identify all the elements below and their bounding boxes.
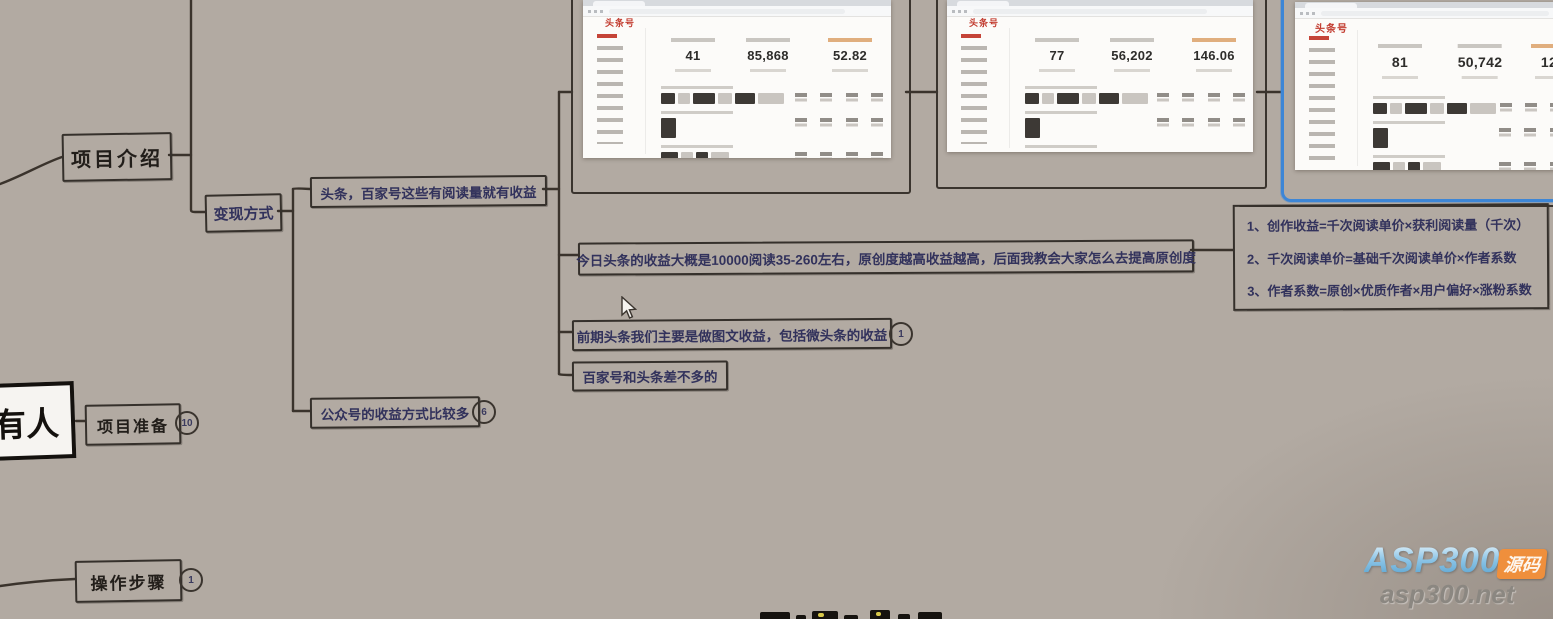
row-metrics [1499, 162, 1553, 170]
row-title-bar [1373, 96, 1445, 99]
row-metrics [1500, 103, 1553, 112]
content-list [661, 86, 883, 158]
url-field [609, 9, 845, 14]
row-title-bar [1025, 145, 1097, 148]
stat-label [1110, 38, 1154, 42]
node-income-detail[interactable]: 今日头条的收益大概是10000阅读35-260左右，原创度越高收益越高，后面我教… [578, 239, 1194, 275]
sidebar-item-active [1309, 36, 1329, 40]
metric-cell [1182, 118, 1194, 127]
metric-cell [1157, 93, 1169, 102]
formula-line-3: 3、作者系数=原创×优质作者×用户偏好×涨粉系数 [1247, 279, 1535, 300]
nav-buttons [588, 10, 604, 13]
stat-reads: 85,868 [746, 38, 790, 72]
stat-reads: 56,202 [1110, 38, 1154, 72]
row-thumbnails [661, 118, 676, 138]
content-row [1025, 145, 1245, 152]
stat-sublabel [1535, 76, 1553, 79]
formula-line-1: 1、创作收益=千次阅读单价×获利阅读量（千次） [1247, 214, 1535, 235]
row-metrics [1157, 118, 1245, 127]
row-thumbnails [1373, 128, 1388, 148]
node-steps[interactable]: 操作步骤 [75, 559, 183, 603]
sidebar-item-active [961, 34, 981, 38]
metric-cell [795, 152, 807, 158]
row-metrics [1499, 128, 1553, 137]
metric-cell [1550, 162, 1553, 170]
metric-cell [1499, 162, 1511, 170]
stat-value: 41 [671, 48, 715, 63]
node-project-intro[interactable]: 项目介绍 [62, 132, 173, 182]
row-line [1025, 118, 1245, 138]
row-thumbnails [1373, 103, 1496, 114]
url-field [1321, 11, 1549, 16]
thumbnail [1408, 162, 1420, 170]
thumbnail [1025, 93, 1039, 104]
stat-value: 146.06 [1192, 48, 1236, 63]
content-row [1373, 121, 1553, 148]
asp300-url: asp300.net [1380, 579, 1514, 610]
row-title-bar [661, 111, 733, 114]
sidebar-items [961, 46, 987, 144]
metric-cell [1524, 128, 1536, 137]
row-line [1373, 128, 1553, 148]
toutiaohao-logo: 头条号 [605, 16, 635, 29]
stat-label [746, 38, 790, 42]
thumbnail [678, 93, 690, 104]
stat-value: 50,742 [1458, 54, 1503, 70]
thumbnail [1447, 103, 1467, 114]
metric-cell [1550, 128, 1553, 137]
row-thumbnails [1025, 93, 1148, 104]
nav-buttons [952, 10, 968, 13]
node-formula-notes[interactable]: 1、创作收益=千次阅读单价×获利阅读量（千次） 2、千次阅读单价=基础千次阅读单… [1233, 203, 1550, 311]
node-baijia-similar[interactable]: 百家号和头条差不多的 [572, 360, 728, 391]
stat-label [1192, 38, 1236, 42]
row-metrics [1157, 93, 1245, 102]
stat-fans: 41 [671, 38, 715, 72]
badge-steps[interactable]: 1 [179, 568, 203, 592]
thumbnail [661, 152, 678, 158]
badge-early-stage[interactable]: 1 [889, 322, 913, 346]
content-row [661, 86, 883, 104]
content-row [661, 111, 883, 138]
sidebar-menu [597, 34, 627, 144]
stat-fans: 77 [1035, 38, 1079, 72]
sidebar-item-active [597, 34, 617, 38]
metric-cell [1233, 118, 1245, 127]
metric-cell [1208, 118, 1220, 127]
metric-cell [1525, 103, 1537, 112]
metric-cell [820, 152, 832, 158]
row-line [1373, 103, 1553, 114]
metric-cell [1233, 93, 1245, 102]
row-thumbnails [661, 152, 729, 158]
stat-label [671, 38, 715, 42]
nav-buttons [1300, 12, 1316, 15]
thumbnail [661, 118, 676, 138]
metric-cell [846, 93, 858, 102]
thumbnail [681, 152, 693, 158]
stat-value: 77 [1035, 48, 1079, 63]
thumbnail [1373, 103, 1387, 114]
browser-addressbar [1295, 8, 1553, 19]
stat-label [1035, 38, 1079, 42]
metric-cell [871, 118, 883, 127]
yuanma-badge: 源码 [1496, 549, 1547, 579]
browser-screenshot-3: 头条号 81 50,742 120 [1295, 2, 1553, 170]
thumbnail [1390, 103, 1402, 114]
stat-income: 52.82 [828, 38, 872, 72]
asp300-logo: ASP300 [1364, 541, 1500, 581]
metric-cell [1157, 118, 1169, 127]
row-line [1025, 93, 1245, 104]
toutiaohao-logo: 头条号 [1315, 20, 1348, 35]
metric-cell [846, 152, 858, 158]
metric-cell [1208, 93, 1220, 102]
row-metrics [795, 118, 883, 127]
clipped-caption-text [752, 606, 952, 619]
badge-gongzhonghao[interactable]: 6 [472, 400, 496, 424]
thumbnail [711, 152, 729, 158]
mindmap-canvas[interactable]: 头条号 41 85,868 52.82 头条号 77 56,202 146.06… [0, 0, 1553, 619]
root-node-partial[interactable]: 有人 [0, 381, 76, 462]
metric-cell [871, 152, 883, 158]
toutiaohao-logo: 头条号 [969, 16, 999, 29]
metric-cell [820, 93, 832, 102]
stat-value: 120 [1531, 54, 1553, 70]
stat-sublabel [675, 69, 711, 72]
sidebar-divider [1009, 28, 1010, 148]
row-title-bar [661, 86, 733, 89]
stat-sublabel [1382, 76, 1418, 79]
url-field [973, 9, 1207, 14]
stat-reads: 50,742 [1458, 44, 1503, 79]
thumbnail [1373, 128, 1388, 148]
formula-line-2: 2、千次阅读单价=基础千次阅读单价×作者系数 [1247, 247, 1535, 268]
row-title-bar [1373, 155, 1445, 158]
browser-screenshot-2: 头条号 77 56,202 146.06 [947, 0, 1253, 152]
thumbnail [1057, 93, 1079, 104]
content-row [1373, 155, 1553, 170]
stat-sublabel [1196, 69, 1232, 72]
sidebar-items [597, 46, 623, 144]
node-gongzhonghao[interactable]: 公众号的收益方式比较多 [310, 396, 480, 428]
stat-income: 120 [1531, 44, 1553, 79]
stat-label [828, 38, 872, 42]
mouse-cursor [620, 296, 638, 320]
stat-sublabel [750, 69, 786, 72]
browser-screenshot-1: 头条号 41 85,868 52.82 [583, 0, 891, 158]
stat-value: 52.82 [828, 48, 872, 63]
stat-label [1378, 44, 1422, 48]
thumbnail [1025, 118, 1040, 138]
content-list [1373, 96, 1553, 170]
metric-cell [820, 118, 832, 127]
row-thumbnails [661, 93, 784, 104]
stat-income: 146.06 [1192, 38, 1236, 72]
content-row [661, 145, 883, 158]
metric-cell [1524, 162, 1536, 170]
thumbnail [1099, 93, 1119, 104]
thumbnail [1430, 103, 1444, 114]
content-row [1025, 86, 1245, 104]
thumbnail [758, 93, 784, 104]
thumbnail [718, 93, 732, 104]
sidebar-menu [1309, 36, 1339, 166]
stat-value: 81 [1378, 54, 1422, 70]
node-toutiao-baijia[interactable]: 头条，百家号这些有阅读量就有收益 [310, 175, 547, 208]
content-row [1025, 111, 1245, 138]
stat-fans: 81 [1378, 44, 1422, 79]
badge-project-prep[interactable]: 10 [175, 411, 199, 435]
sidebar-divider [645, 28, 646, 154]
row-title-bar [1025, 86, 1097, 89]
sidebar-menu [961, 34, 991, 144]
row-title-bar [1373, 121, 1445, 124]
thumbnail [661, 93, 675, 104]
row-metrics [795, 152, 883, 158]
stat-sublabel [1039, 69, 1075, 72]
root-node-label: 有人 [0, 396, 60, 446]
row-line [661, 93, 883, 104]
thumbnail [1470, 103, 1496, 114]
thumbnail [1423, 162, 1441, 170]
row-line [661, 118, 883, 138]
content-list [1025, 86, 1245, 152]
thumbnail [1373, 162, 1390, 170]
stat-sublabel [832, 69, 868, 72]
metric-cell [1182, 93, 1194, 102]
thumbnail [1042, 93, 1054, 104]
row-title-bar [1025, 111, 1097, 114]
stat-sublabel [1114, 69, 1150, 72]
sidebar-items [1309, 48, 1335, 166]
thumbnail [1405, 103, 1427, 114]
row-line [661, 152, 883, 158]
content-row [1373, 96, 1553, 114]
thumbnail [735, 93, 755, 104]
thumbnail [1393, 162, 1405, 170]
thumbnail [693, 93, 715, 104]
metric-cell [871, 93, 883, 102]
metric-cell [1500, 103, 1512, 112]
row-thumbnails [1373, 162, 1441, 170]
thumbnail [1082, 93, 1096, 104]
row-thumbnails [1025, 118, 1040, 138]
sidebar-divider [1357, 30, 1358, 166]
stat-value: 56,202 [1110, 48, 1154, 63]
row-metrics [795, 93, 883, 102]
row-line [1373, 162, 1553, 170]
stat-sublabel [1462, 76, 1498, 79]
metric-cell [795, 118, 807, 127]
thumbnail [1122, 93, 1148, 104]
metric-cell [795, 93, 807, 102]
row-title-bar [661, 145, 733, 148]
stat-label [1531, 44, 1553, 48]
thumbnail [696, 152, 708, 158]
stat-value: 85,868 [746, 48, 790, 63]
node-monetization[interactable]: 变现方式 [205, 193, 283, 233]
metric-cell [846, 118, 858, 127]
metric-cell [1499, 128, 1511, 137]
node-project-prep[interactable]: 项目准备 [85, 403, 182, 446]
stat-label [1458, 44, 1502, 48]
node-early-stage[interactable]: 前期头条我们主要是做图文收益，包括微头条的收益 [572, 318, 892, 351]
